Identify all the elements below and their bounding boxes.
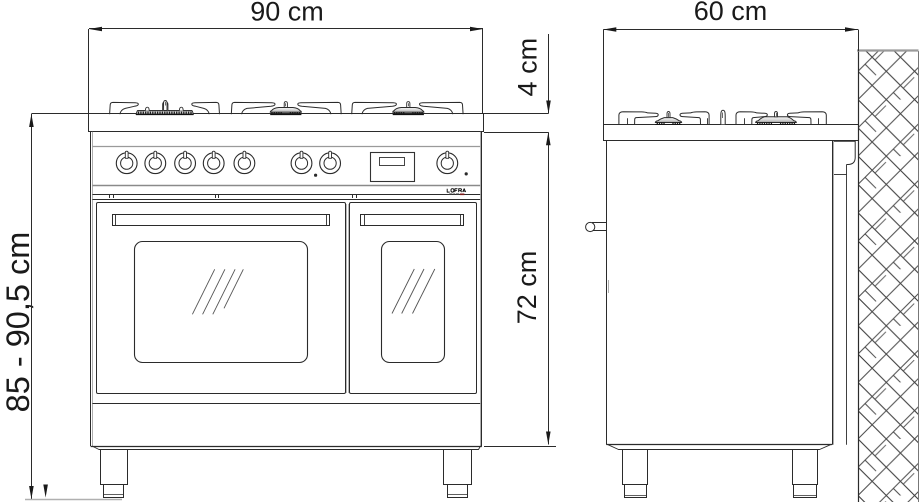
svg-text:4 cm: 4 cm — [513, 38, 543, 97]
svg-text:60 cm: 60 cm — [694, 0, 768, 26]
svg-text:90 cm: 90 cm — [250, 0, 324, 27]
svg-text:72 cm: 72 cm — [512, 251, 542, 325]
svg-text:85 - 90,5 cm: 85 - 90,5 cm — [0, 232, 36, 413]
